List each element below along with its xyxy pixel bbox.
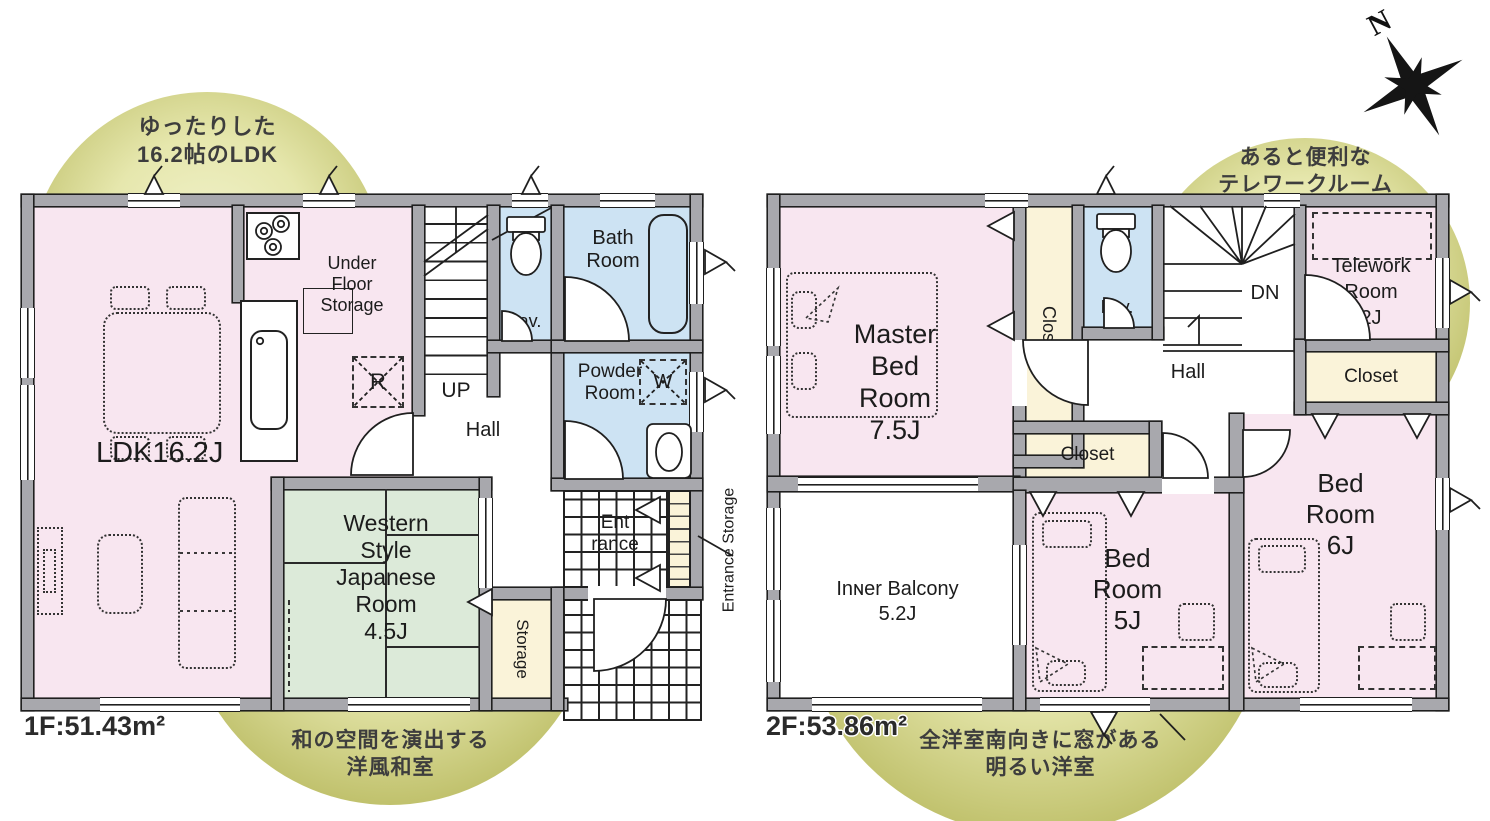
jp-line4: Room (298, 591, 474, 618)
under-floor-line2: Floor (300, 274, 404, 295)
balcony-opening (812, 697, 982, 712)
1f-entrance-storage-shelf (668, 490, 691, 588)
lavatory-label-2f: Lav. (1085, 297, 1149, 318)
window (1435, 478, 1450, 530)
master-closet-label: Closet (1025, 206, 1073, 456)
tv (43, 549, 56, 593)
wall (552, 341, 702, 352)
window (600, 193, 655, 208)
hall-label-1f: Hall (448, 419, 518, 442)
compass-north-label: N (1362, 3, 1397, 42)
callout-telework-line1: あると便利な (1158, 144, 1453, 171)
1f-stairs (424, 206, 488, 391)
vent-triangle (705, 250, 735, 274)
callout-ldk-line2: 16.2帖のLDK (80, 141, 335, 169)
master-line1: Master (828, 318, 962, 350)
wall (233, 206, 243, 302)
1f-porch-tile (563, 599, 702, 721)
entrance-storage-label: Entrance Storage (712, 462, 746, 637)
window (303, 193, 355, 208)
window (689, 242, 704, 304)
window (348, 697, 470, 712)
bed5-line1: Bed (1075, 543, 1180, 574)
master-line4: 7.5J (828, 414, 962, 446)
lavatory-label-1f: Lav. (497, 311, 553, 332)
wall (488, 206, 499, 396)
wall (1230, 414, 1243, 710)
balcony-line2: 5.2J (795, 602, 1000, 627)
callout-telework-text: あると便利な テレワークルーム (1158, 144, 1453, 198)
wall (1083, 328, 1163, 339)
wall (1295, 340, 1305, 414)
chair (1390, 603, 1426, 641)
dining-table (103, 312, 221, 434)
wall (413, 206, 424, 415)
under-floor-line1: Under (300, 253, 404, 274)
callout-japanese-line2: 洋風和室 (238, 754, 543, 781)
hall-label-2f: Hall (1152, 361, 1224, 384)
up-label: UP (424, 379, 488, 403)
2f-area-label: 2F:53.86m² (766, 711, 907, 742)
bath-line1: Bath (567, 227, 659, 250)
nightstand (1046, 660, 1086, 686)
under-floor-line3: Storage (300, 295, 404, 316)
jp-line1: Western (298, 510, 474, 537)
compass-star-long (1337, 10, 1488, 161)
callout-japanese-text: 和の空間を演出する 洋風和室 (238, 727, 543, 781)
under-floor-storage-label: Under Floor Storage (300, 253, 404, 316)
compass-rose: N (1322, 0, 1488, 162)
bed6-line3: 6J (1288, 530, 1393, 561)
callout-bright-line2: 明るい洋室 (888, 754, 1193, 781)
vent-triangle (1450, 488, 1480, 512)
sliding-window (798, 477, 978, 492)
balcony-opening (766, 600, 781, 682)
bed5-line2: Room (1075, 574, 1180, 605)
dn-label: DN (1235, 282, 1295, 305)
desk (1358, 646, 1436, 690)
master-bedroom-label: Master Bed Room 7.5J (828, 318, 962, 446)
ldk-label: LDK16.2J (96, 437, 223, 470)
entrance-line2: rance (571, 534, 659, 556)
window (985, 193, 1028, 208)
vent-triangle (1097, 166, 1115, 194)
bath-line2: Room (567, 250, 659, 273)
jp-line5: 4.5J (298, 618, 474, 645)
door-opening (1162, 476, 1214, 494)
compass-star-short (1376, 49, 1451, 124)
pillow (791, 352, 817, 390)
wall (552, 588, 563, 710)
wall (480, 588, 563, 599)
kitchen-sink (250, 330, 288, 430)
jp-line3: Japanese (298, 564, 474, 591)
bath-room-label: Bath Room (567, 227, 659, 273)
wall (1295, 340, 1448, 351)
master-closet-label-text: Closet (1039, 305, 1060, 356)
window (100, 697, 240, 712)
sliding-door (478, 498, 493, 588)
entrance-line1: Ent (571, 512, 659, 534)
sofa (178, 497, 236, 669)
callout-japanese-line1: 和の空間を演出する (238, 727, 543, 754)
window (1300, 697, 1412, 712)
telework-line2: Room (1303, 279, 1439, 305)
balcony-opening (766, 508, 781, 590)
storage-label: Storage (491, 599, 552, 699)
bed6-line2: Room (1288, 499, 1393, 530)
chair (110, 286, 150, 310)
desk (1142, 646, 1224, 690)
refrigerator-label: R (352, 369, 404, 395)
window (20, 385, 35, 480)
bedroom-5j-label: Bed Room 5J (1075, 543, 1180, 636)
callout-telework-line2: テレワークルーム (1158, 171, 1453, 198)
door-opening (588, 586, 666, 601)
window (20, 308, 35, 378)
jp-line2: Style (298, 537, 474, 564)
balcony-line1: Inɴer Balcony (795, 577, 1000, 602)
chair (1178, 603, 1215, 641)
master-line2: Bed (828, 350, 962, 382)
window (689, 372, 704, 432)
bed6-line1: Bed (1288, 468, 1393, 499)
wall (552, 479, 702, 490)
closet-center-label: Closet (1025, 444, 1150, 466)
inner-balcony-label: Inɴer Balcony 5.2J (795, 577, 1000, 627)
wall (1295, 403, 1448, 414)
entrance-label: Ent rance (571, 512, 659, 556)
stove (246, 212, 300, 260)
bed5-line3: 5J (1075, 605, 1180, 636)
bedroom-6j-label: Bed Room 6J (1288, 468, 1393, 561)
washer-label: W (639, 371, 687, 394)
window (766, 356, 781, 434)
master-line3: Room (828, 382, 962, 414)
japanese-room-label: Western Style Japanese Room 4.5J (298, 510, 474, 645)
storage-label-text: Storage (511, 619, 531, 679)
wall (272, 478, 491, 489)
1f-area-label: 1F:51.43m² (24, 711, 165, 742)
window (512, 193, 548, 208)
vent-triangle (522, 166, 540, 194)
wall (1153, 206, 1163, 339)
floorplan-page: ゆったりした 16.2帖のLDK 和の空間を演出する 洋風和室 あると便利な テ… (0, 0, 1490, 821)
window (128, 193, 180, 208)
vent-triangle (705, 378, 735, 402)
closet-east-label: Closet (1305, 366, 1437, 388)
callout-ldk-text: ゆったりした 16.2帖のLDK (80, 113, 335, 169)
window (1012, 545, 1027, 645)
tatami-line (387, 646, 480, 648)
telework-line1: Telework (1303, 253, 1439, 279)
callout-bright-line1: 全洋室南向きに窓がある (888, 727, 1193, 754)
telework-room-label: Telework Room 2J (1303, 253, 1439, 331)
telework-line3: 2J (1303, 305, 1439, 331)
wall (272, 478, 283, 710)
nightstand (1258, 662, 1298, 688)
callout-ldk-line1: ゆったりした (80, 113, 335, 141)
entrance-storage-label-text: Entrance Storage (720, 487, 738, 612)
window (766, 268, 781, 346)
window (1040, 697, 1150, 712)
chair (166, 286, 206, 310)
coffee-table (97, 534, 143, 614)
pillow (791, 291, 817, 329)
callout-bright-text: 全洋室南向きに窓がある 明るい洋室 (888, 727, 1193, 781)
